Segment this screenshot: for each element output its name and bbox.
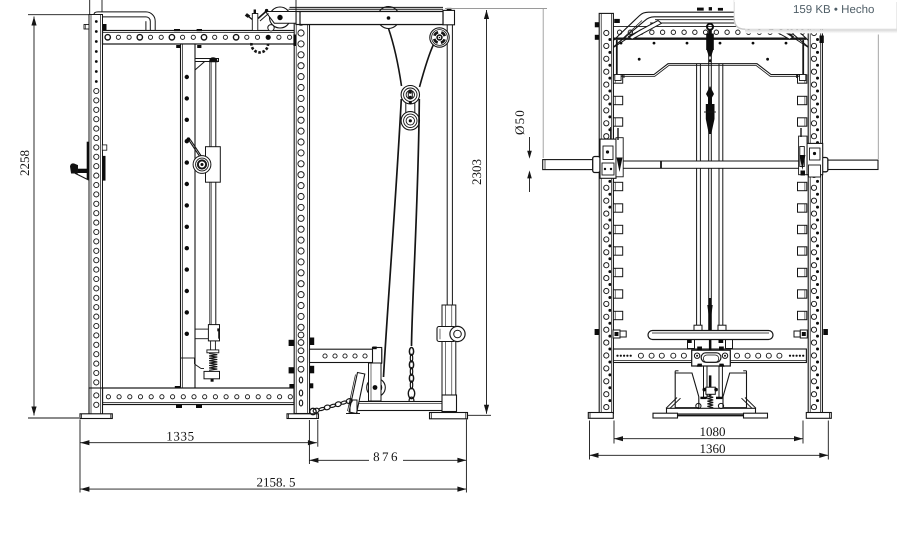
svg-text:876: 876 — [373, 449, 400, 464]
svg-text:Ø50: Ø50 — [512, 109, 527, 135]
svg-text:2303: 2303 — [469, 159, 484, 185]
svg-text:159 KB • Hecho: 159 KB • Hecho — [793, 4, 874, 16]
svg-text:1360: 1360 — [700, 441, 726, 456]
svg-text:2258: 2258 — [17, 150, 32, 176]
svg-text:1080: 1080 — [700, 424, 726, 439]
svg-text:1335: 1335 — [166, 429, 194, 444]
svg-text:2158. 5: 2158. 5 — [257, 475, 296, 490]
